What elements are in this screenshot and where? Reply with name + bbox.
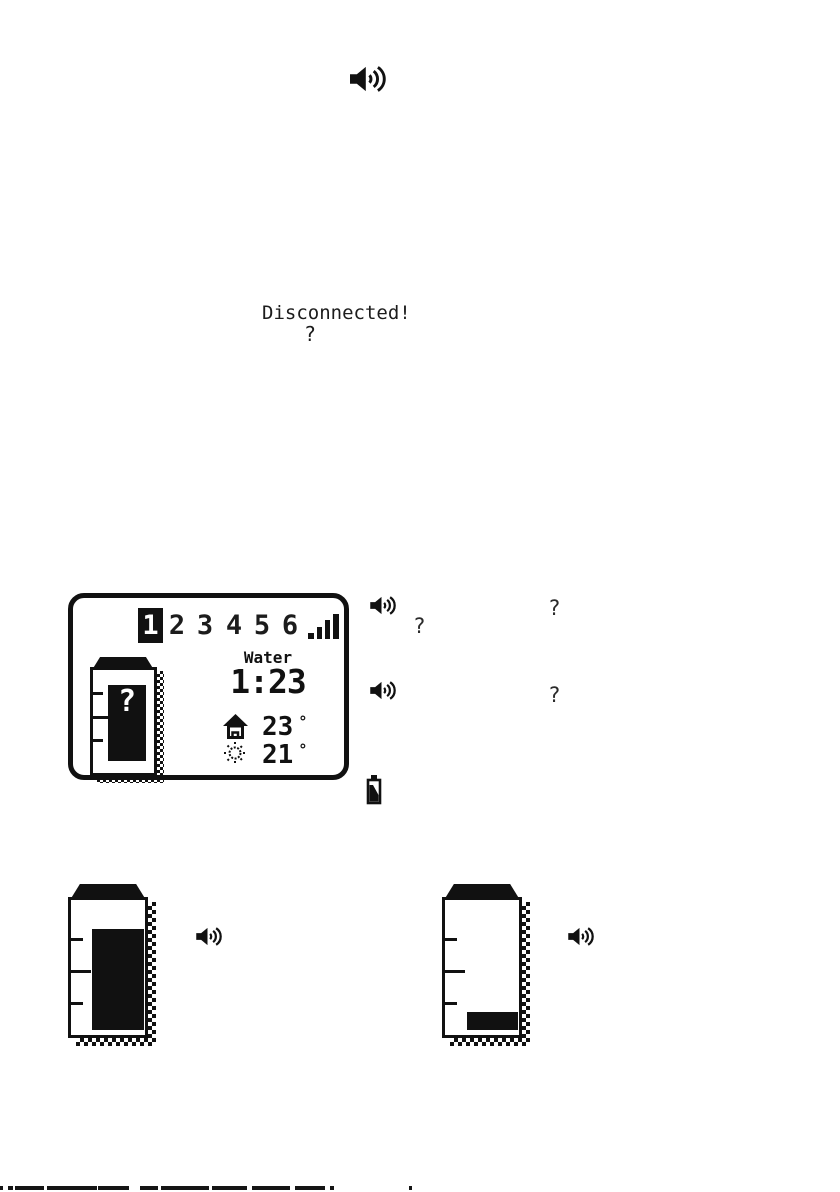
channel-2: 2 bbox=[168, 608, 186, 643]
outdoor-temp: 21 bbox=[262, 740, 293, 770]
indoor-temp: 23 bbox=[262, 712, 293, 742]
tank-shadow bbox=[97, 776, 164, 783]
channel-6: 6 bbox=[281, 608, 299, 643]
tank-question-mark: ? bbox=[108, 687, 146, 717]
channel-4: 4 bbox=[225, 608, 243, 643]
lcd-display: 1 2 3 4 5 6 ? Water 1:23 bbox=[68, 593, 349, 780]
tank-full-illustration bbox=[68, 884, 158, 1046]
tank-tick bbox=[445, 970, 465, 973]
indoor-temp-unit: ° bbox=[293, 713, 307, 731]
lcd-tank-illustration: ? bbox=[90, 657, 165, 783]
manual-page: Disconnected! ? 1 2 3 4 5 6 ? bbox=[0, 0, 840, 1192]
speaker-icon bbox=[568, 926, 597, 947]
speaker-icon bbox=[370, 595, 399, 616]
battery-low-icon bbox=[366, 775, 382, 805]
outdoor-temp-unit: ° bbox=[293, 741, 307, 759]
tank-shadow bbox=[157, 671, 164, 776]
tank-tick bbox=[93, 716, 109, 719]
lcd-time: 1:23 bbox=[228, 662, 308, 701]
question-mark-3: ? bbox=[548, 683, 561, 707]
tank-tick bbox=[71, 970, 91, 973]
indoor-temp-row: 23° bbox=[262, 713, 307, 741]
outdoor-temp-row: 21° bbox=[262, 741, 307, 769]
channel-selected: 1 bbox=[138, 608, 163, 643]
tank-fill-unknown: ? bbox=[108, 685, 146, 761]
question-mark-2: ? bbox=[413, 614, 426, 638]
sun-icon bbox=[220, 741, 248, 766]
speaker-icon bbox=[350, 64, 390, 94]
tank-tick bbox=[445, 1002, 457, 1005]
tank-shadow bbox=[522, 902, 530, 1042]
speaker-icon bbox=[196, 926, 225, 947]
tank-tick bbox=[71, 938, 83, 941]
tank-tick bbox=[445, 938, 457, 941]
signal-strength-icon bbox=[308, 614, 341, 639]
tank-shadow bbox=[76, 1038, 156, 1046]
speaker-icon bbox=[370, 680, 399, 701]
tank-shadow bbox=[450, 1038, 530, 1046]
tank-fill-high bbox=[92, 929, 144, 1030]
question-mark-1: ? bbox=[548, 596, 561, 620]
channel-3: 3 bbox=[196, 608, 214, 643]
channel-5: 5 bbox=[253, 608, 271, 643]
tank-shadow bbox=[148, 902, 156, 1042]
disconnected-message: Disconnected! bbox=[262, 302, 422, 324]
tank-tick bbox=[93, 692, 103, 695]
tank-fill-low bbox=[467, 1012, 518, 1030]
house-icon bbox=[222, 713, 249, 741]
disconnected-question-mark: ? bbox=[296, 322, 324, 346]
tank-tick bbox=[93, 739, 103, 742]
tank-low-illustration bbox=[442, 884, 532, 1046]
tank-tick bbox=[71, 1002, 83, 1005]
